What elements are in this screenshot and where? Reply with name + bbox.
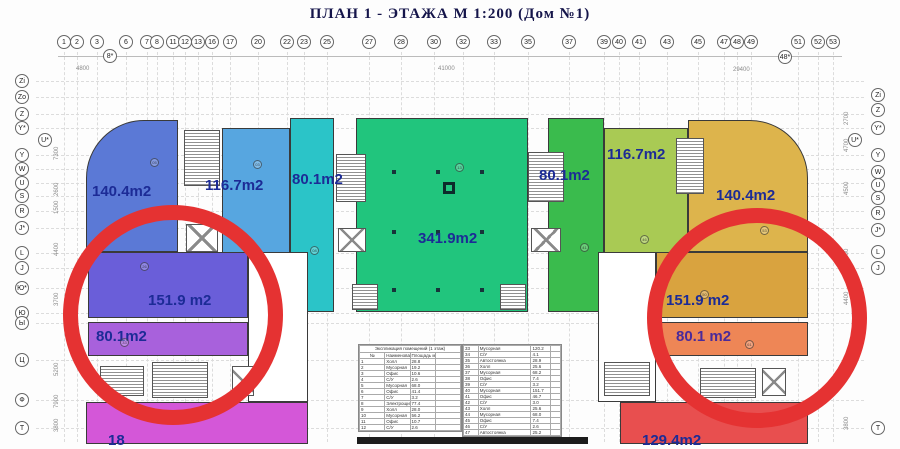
axis-letter-left: Ы xyxy=(15,316,29,330)
axis-number: 17 xyxy=(223,35,237,49)
dimension-label: 41000 xyxy=(438,66,455,72)
room-number: 08 xyxy=(310,246,319,255)
bottom-frame-bar xyxy=(357,437,588,444)
axis-letter-left: U* xyxy=(38,133,52,147)
axis-letter-right: J xyxy=(871,261,885,275)
axis-number: 41 xyxy=(632,35,646,49)
dimension-label: 2700 xyxy=(844,112,850,125)
axis-number: 30 xyxy=(427,35,441,49)
axis-number: 23 xyxy=(297,35,311,49)
axis-letter-right: U xyxy=(871,178,885,192)
grid-line-horizontal xyxy=(36,81,864,82)
elevator-icon xyxy=(531,228,561,252)
table-caption: Экспликация помещений (1 этаж) xyxy=(359,345,461,352)
axis-letter-left: Ц xyxy=(15,353,29,367)
grid-line-horizontal xyxy=(36,97,864,98)
axis-number: 22 xyxy=(280,35,294,49)
area-label: 341.9m2 xyxy=(418,230,477,247)
room-number: 13 xyxy=(455,163,464,172)
highlight-circle xyxy=(647,208,867,428)
unit-80-green xyxy=(548,118,604,312)
axis-letter-left: Y* xyxy=(15,121,29,135)
axis-number: 52 xyxy=(811,35,825,49)
dimension-label: 4800 xyxy=(76,66,89,72)
axis-number-offset: 48* xyxy=(778,50,792,64)
axis-letter-right: R xyxy=(871,206,885,220)
shaft-symbol xyxy=(443,182,455,194)
axis-number: 35 xyxy=(521,35,535,49)
page-title: ПЛАН 1 - ЭТАЖА М 1:200 (Дом №1) xyxy=(0,6,900,23)
table-row: 47Автостоянка25.2 xyxy=(464,430,561,436)
stairs-icon xyxy=(500,284,526,310)
axis-letter-right: L xyxy=(871,245,885,259)
dimension-label: 7300 xyxy=(54,147,60,160)
area-label: 116.7m2 xyxy=(607,146,665,163)
area-label: 18 xyxy=(108,432,125,449)
axis-letter-left: Zo xyxy=(15,90,29,104)
table-grid: №НаименованиеПлощадь м²1Холл28.82Мусорна… xyxy=(359,352,461,431)
axis-letter-left: R xyxy=(15,204,29,218)
axis-number: 39 xyxy=(597,35,611,49)
dimension-label: 29400 xyxy=(733,67,750,73)
axis-number: 40 xyxy=(612,35,626,49)
axis-number: 47 xyxy=(717,35,731,49)
area-label: 129.4m2 xyxy=(642,432,701,449)
area-label: 80.1m2 xyxy=(292,171,343,188)
axis-number: 37 xyxy=(562,35,576,49)
axis-number: 45 xyxy=(691,35,705,49)
axis-number-offset: 8* xyxy=(103,49,117,63)
room-schedule-table: 33Мусорная120.234С/У4.135Автостоянка28.9… xyxy=(462,344,562,437)
dimension-label: 3800 xyxy=(54,419,60,432)
axis-letter-left: L xyxy=(15,246,29,260)
axis-number: 16 xyxy=(205,35,219,49)
room-number: 03 xyxy=(253,160,262,169)
axis-letter-left: Y xyxy=(15,148,29,162)
axis-number: 51 xyxy=(791,35,805,49)
grid-line-horizontal xyxy=(36,114,864,115)
axis-number: 48 xyxy=(730,35,744,49)
column-marker xyxy=(480,288,484,292)
axis-number: 28 xyxy=(394,35,408,49)
room-schedule-table: Экспликация помещений (1 этаж)№Наименова… xyxy=(358,344,462,432)
axis-letter-right: W xyxy=(871,165,885,179)
unit-341-center xyxy=(356,118,528,312)
table-row: 12С/У2.6 xyxy=(360,425,461,431)
axis-number: 20 xyxy=(251,35,265,49)
grid-line-vertical xyxy=(64,52,65,442)
stairs-icon xyxy=(604,362,650,396)
axis-number: 6 xyxy=(119,35,133,49)
axis-letter-right: Т xyxy=(871,421,885,435)
axis-number: 53 xyxy=(826,35,840,49)
axis-number: 49 xyxy=(744,35,758,49)
room-number: 05 xyxy=(150,158,159,167)
dimension-label: 1500 xyxy=(54,201,60,214)
axis-letter-left: J xyxy=(15,261,29,275)
column-marker xyxy=(480,230,484,234)
axis-letter-left: J* xyxy=(15,221,29,235)
axis-number: 43 xyxy=(660,35,674,49)
axis-letter-left: Z xyxy=(15,107,29,121)
stairs-icon xyxy=(676,138,704,194)
floor-plan: ПЛАН 1 - ЭТАЖА М 1:200 (Дом №1) 140.4m21… xyxy=(0,0,900,444)
axis-letter-right: S xyxy=(871,191,885,205)
dimension-label: 7900 xyxy=(54,395,60,408)
room-number: 46 xyxy=(640,235,649,244)
area-label: 140.4m2 xyxy=(716,187,775,204)
room-number: 41 xyxy=(580,243,589,252)
axis-number: 8 xyxy=(150,35,164,49)
axis-number: 3 xyxy=(90,35,104,49)
dimension-label: 5200 xyxy=(54,363,60,376)
table-header: Площадь м² xyxy=(410,353,435,359)
axis-letter-left: Zi xyxy=(15,74,29,88)
stairs-icon xyxy=(352,284,378,310)
axis-number: 13 xyxy=(191,35,205,49)
axis-number: 27 xyxy=(362,35,376,49)
grid-line-vertical xyxy=(77,52,78,442)
axis-letter-right: U* xyxy=(848,133,862,147)
axis-letter-left: Ф xyxy=(15,393,29,407)
axis-letter-right: Z xyxy=(871,103,885,117)
axis-number: 32 xyxy=(456,35,470,49)
area-label: 140.4m2 xyxy=(92,183,151,200)
highlight-circle xyxy=(63,205,283,425)
axis-letter-left: U xyxy=(15,176,29,190)
area-label: 80.1m2 xyxy=(539,167,590,184)
column-marker xyxy=(392,230,396,234)
elevator-icon xyxy=(338,228,366,252)
axis-letter-right: Y xyxy=(871,148,885,162)
dimension-label: 4500 xyxy=(844,182,850,195)
axis-letter-right: J* xyxy=(871,223,885,237)
dimension-label: 2600 xyxy=(54,183,60,196)
dimension-label: 3800 xyxy=(844,417,850,430)
area-label: 116.7m2 xyxy=(205,177,263,194)
column-marker xyxy=(392,170,396,174)
axis-number: 1 xyxy=(57,35,71,49)
dimension-label: 3700 xyxy=(54,293,60,306)
axis-number: 33 xyxy=(487,35,501,49)
dimension-label: 4400 xyxy=(54,243,60,256)
column-marker xyxy=(480,170,484,174)
column-marker xyxy=(392,288,396,292)
axis-number: 25 xyxy=(320,35,334,49)
axis-number: 12 xyxy=(178,35,192,49)
table-header: Наименование xyxy=(385,353,410,359)
column-marker xyxy=(436,288,440,292)
axis-letter-left: Ю* xyxy=(15,281,29,295)
axis-letter-left: Т xyxy=(15,421,29,435)
axis-letter-right: Zi xyxy=(871,88,885,102)
axis-letter-left: S xyxy=(15,189,29,203)
axis-letter-left: W xyxy=(15,162,29,176)
axis-number: 2 xyxy=(70,35,84,49)
table-grid: 33Мусорная120.234С/У4.135Автостоянка28.9… xyxy=(463,345,561,436)
axis-letter-right: Y* xyxy=(871,121,885,135)
column-marker xyxy=(436,170,440,174)
